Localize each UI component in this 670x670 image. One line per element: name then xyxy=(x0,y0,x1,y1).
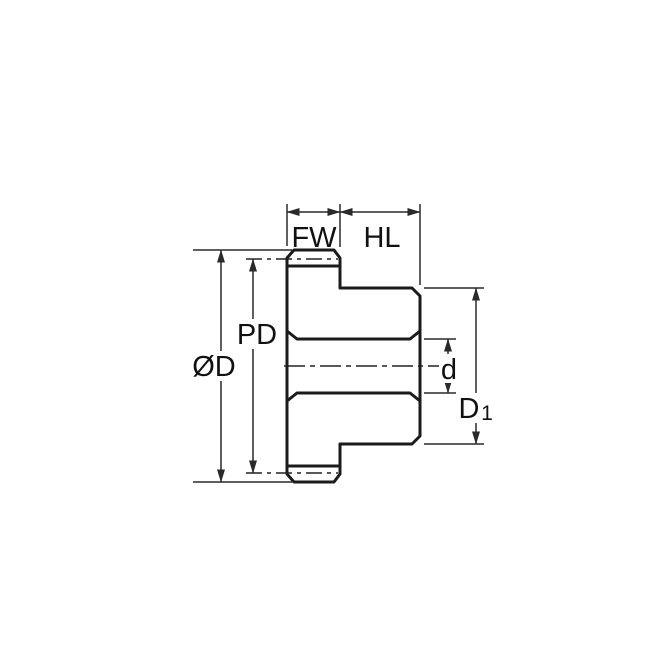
label-outside-diameter: ØD xyxy=(192,351,236,383)
gear-upper-body xyxy=(287,266,420,339)
label-hub-diameter-main: D xyxy=(459,393,480,425)
gear-dimension-diagram: FW HL ØD PD d D 1 xyxy=(0,0,670,670)
label-hub-diameter-subscript: 1 xyxy=(481,402,493,425)
label-pitch-diameter: PD xyxy=(237,319,277,351)
label-bore-diameter: d xyxy=(441,354,457,386)
gear-tooth-bottom xyxy=(287,466,340,482)
dimension-face-width-hub-length: FW HL xyxy=(287,204,420,285)
label-face-width: FW xyxy=(291,222,337,254)
gear-drawing-canvas: FW HL ØD PD d D 1 xyxy=(0,0,670,670)
dimension-outside-pitch-diameter: ØD PD xyxy=(190,250,292,482)
gear-lower-body xyxy=(287,393,420,466)
label-hub-length: HL xyxy=(363,222,400,254)
